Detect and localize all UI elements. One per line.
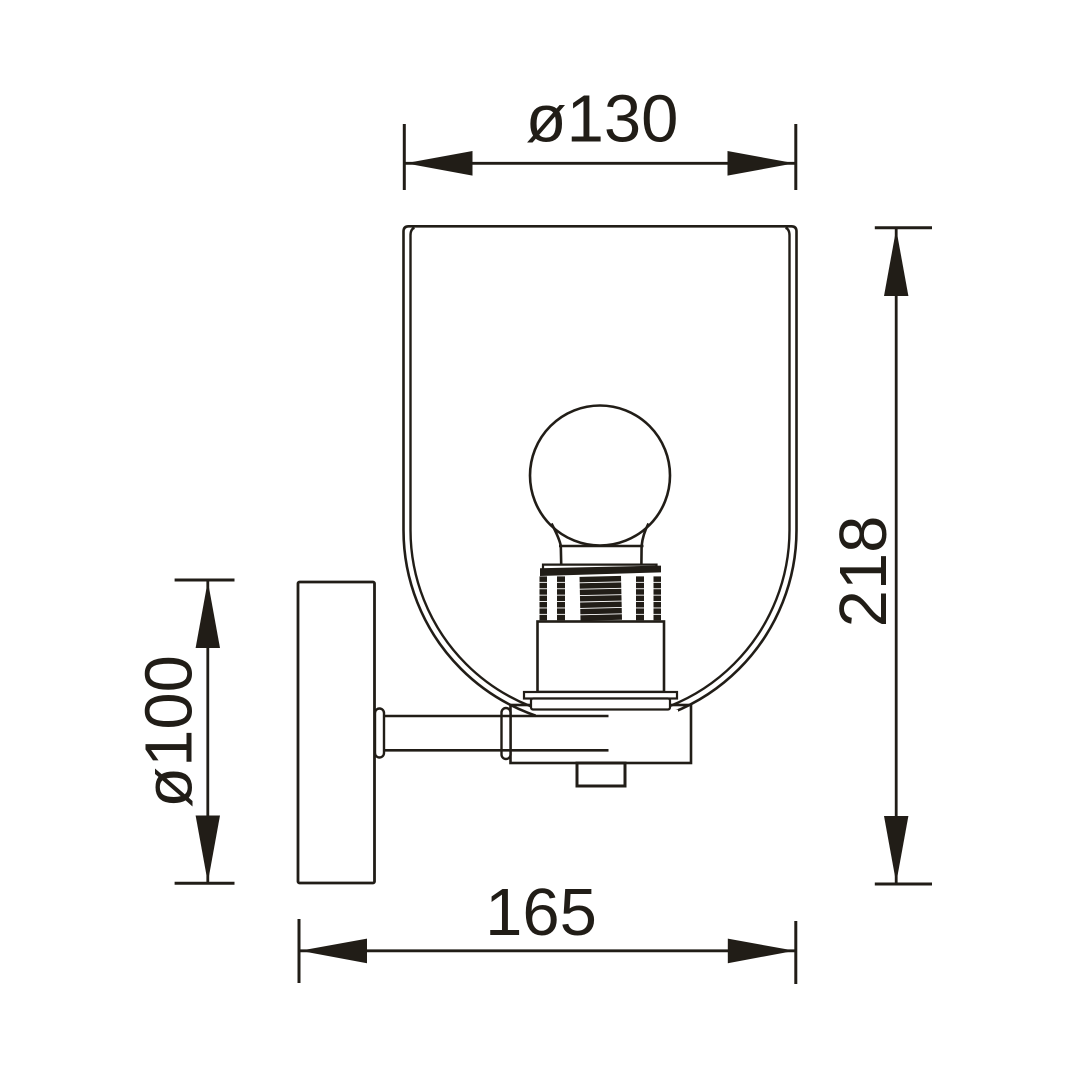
svg-text:165: 165 bbox=[485, 875, 597, 950]
svg-text:ø130: ø130 bbox=[526, 82, 679, 157]
svg-text:ø100: ø100 bbox=[132, 655, 207, 808]
svg-text:218: 218 bbox=[826, 516, 901, 628]
